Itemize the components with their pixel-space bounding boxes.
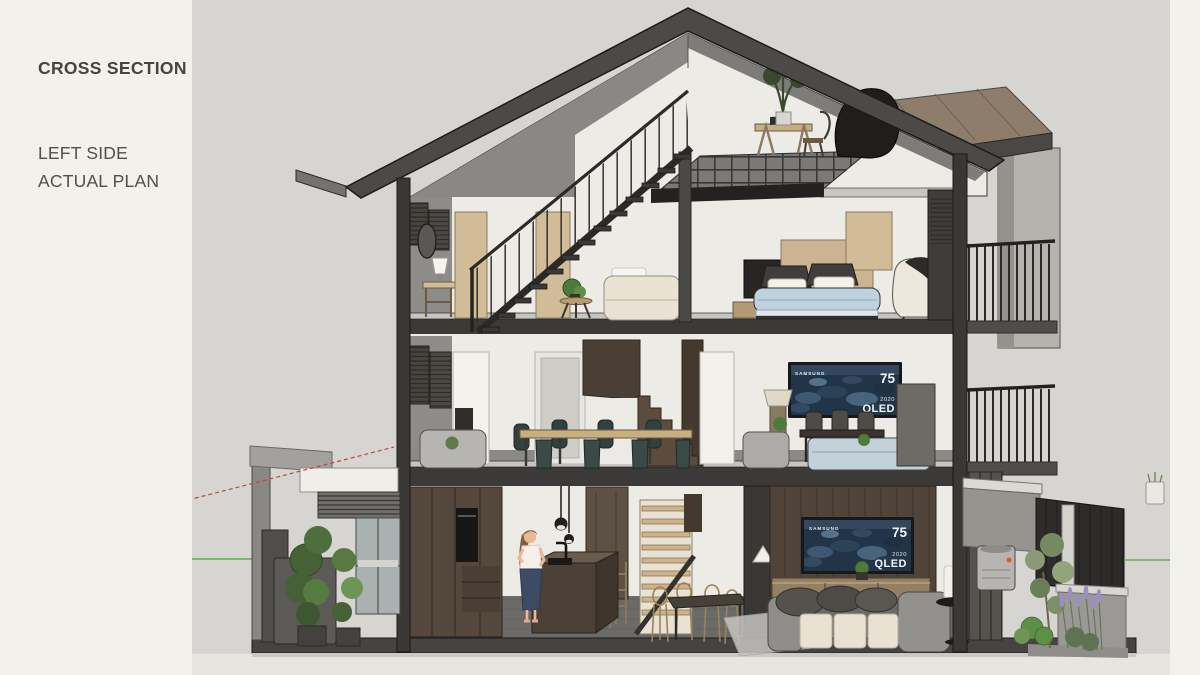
shutter-panels-level2	[407, 346, 451, 408]
side-tv-unit	[455, 408, 473, 432]
orange-indicator	[1006, 557, 1011, 562]
foliage	[1014, 628, 1030, 644]
table-lamp-shade	[432, 258, 448, 274]
balcony-level2	[965, 386, 1057, 475]
chair-seat	[803, 138, 823, 143]
plant-pot	[336, 628, 360, 646]
plant-pot	[298, 626, 326, 646]
plant-pot	[856, 572, 868, 580]
tv-brand-text: SAMSUNG	[795, 371, 825, 376]
wall-pot	[1146, 472, 1164, 504]
level2: SAMSUNG 75 2020 QLED	[405, 334, 967, 486]
dining-table-top	[520, 430, 692, 438]
subtitle-line-2: ACTUAL PLAN	[38, 167, 159, 195]
page-subtitle: LEFT SIDE ACTUAL PLAN	[38, 139, 159, 195]
page-title: CROSS SECTION	[38, 58, 187, 79]
partition-wall-edge	[679, 152, 691, 322]
console-top	[423, 282, 455, 288]
foliage	[1025, 550, 1045, 570]
long-skirt	[520, 569, 542, 610]
counter-through-window	[358, 560, 398, 567]
foliage	[296, 602, 320, 626]
green-pillow	[446, 437, 459, 450]
sink	[548, 558, 572, 565]
bed-base	[756, 310, 878, 316]
tv-brand-text: SAMSUNG	[809, 526, 839, 531]
ground-plane	[192, 654, 1170, 675]
sofa-body	[604, 276, 680, 320]
balcony-railing-bars	[967, 389, 1055, 462]
balcony-slab	[965, 321, 1057, 333]
balcony-level3	[965, 241, 1057, 333]
foliage	[332, 602, 352, 622]
ground-slab-cap	[252, 653, 1136, 657]
right-cut-wall-edge	[953, 154, 967, 652]
subtitle-line-1: LEFT SIDE	[38, 139, 159, 167]
foliage	[332, 548, 356, 572]
garden-wall	[963, 488, 1040, 552]
foliage	[341, 577, 363, 599]
dark-table-top	[800, 430, 884, 437]
foliage	[304, 526, 332, 554]
pot	[1146, 482, 1164, 504]
white-door	[700, 352, 734, 464]
lavender-base	[1081, 633, 1099, 651]
pendant-globe-glow	[566, 540, 572, 544]
dark-pillow	[855, 588, 897, 612]
foliage	[1035, 627, 1053, 645]
exterior-shutter-slats	[930, 198, 952, 244]
bed-frame	[756, 316, 878, 320]
bonsai-plant	[773, 417, 787, 431]
gray-armchair-level2	[743, 432, 789, 468]
seat-cushion	[800, 614, 832, 648]
round-mirror	[418, 224, 436, 258]
screen-slats	[318, 492, 400, 518]
foliage	[303, 579, 329, 605]
seat-cushion	[868, 614, 898, 648]
seat-cushion	[834, 614, 866, 648]
foliage	[1052, 561, 1074, 583]
wardrobe-level2	[897, 384, 935, 466]
balcony-railing-bars	[967, 244, 1055, 322]
ground-slab-edge	[252, 638, 1136, 653]
table-lamp-base	[438, 274, 442, 282]
tv-size-text: 75	[892, 525, 908, 540]
drawer-stack	[462, 566, 500, 612]
pendant-globe-glow	[557, 525, 565, 530]
ground-staircase	[636, 494, 702, 634]
outdoor-unit	[977, 545, 1015, 590]
wood-wardrobe-panel	[846, 212, 892, 270]
foliage	[1040, 533, 1064, 557]
tv-size-text: 75	[880, 371, 896, 386]
left-panel: CROSS SECTION LEFT SIDE ACTUAL PLAN	[0, 0, 192, 675]
sofa-plant	[858, 434, 870, 446]
stair-enclosure	[583, 340, 640, 400]
right-margin	[1170, 0, 1200, 675]
dark-pillow	[776, 588, 824, 616]
daybed-sofa	[604, 268, 680, 320]
plant-pot	[776, 112, 791, 125]
unit-top	[980, 545, 1012, 553]
presentation-slide: SAMSUNG 75 2020 QLED	[0, 0, 1200, 675]
ground-sofa	[768, 586, 950, 652]
porch-fascia	[300, 468, 398, 492]
lamp-shade	[764, 390, 792, 406]
shutter-slats	[430, 352, 451, 408]
foliage	[1030, 578, 1050, 598]
tv-model-text: QLED	[874, 558, 907, 570]
stair-upper-wall	[684, 494, 702, 532]
kitchen-island	[532, 543, 618, 633]
kitchen-tall-cabinets	[410, 487, 502, 637]
